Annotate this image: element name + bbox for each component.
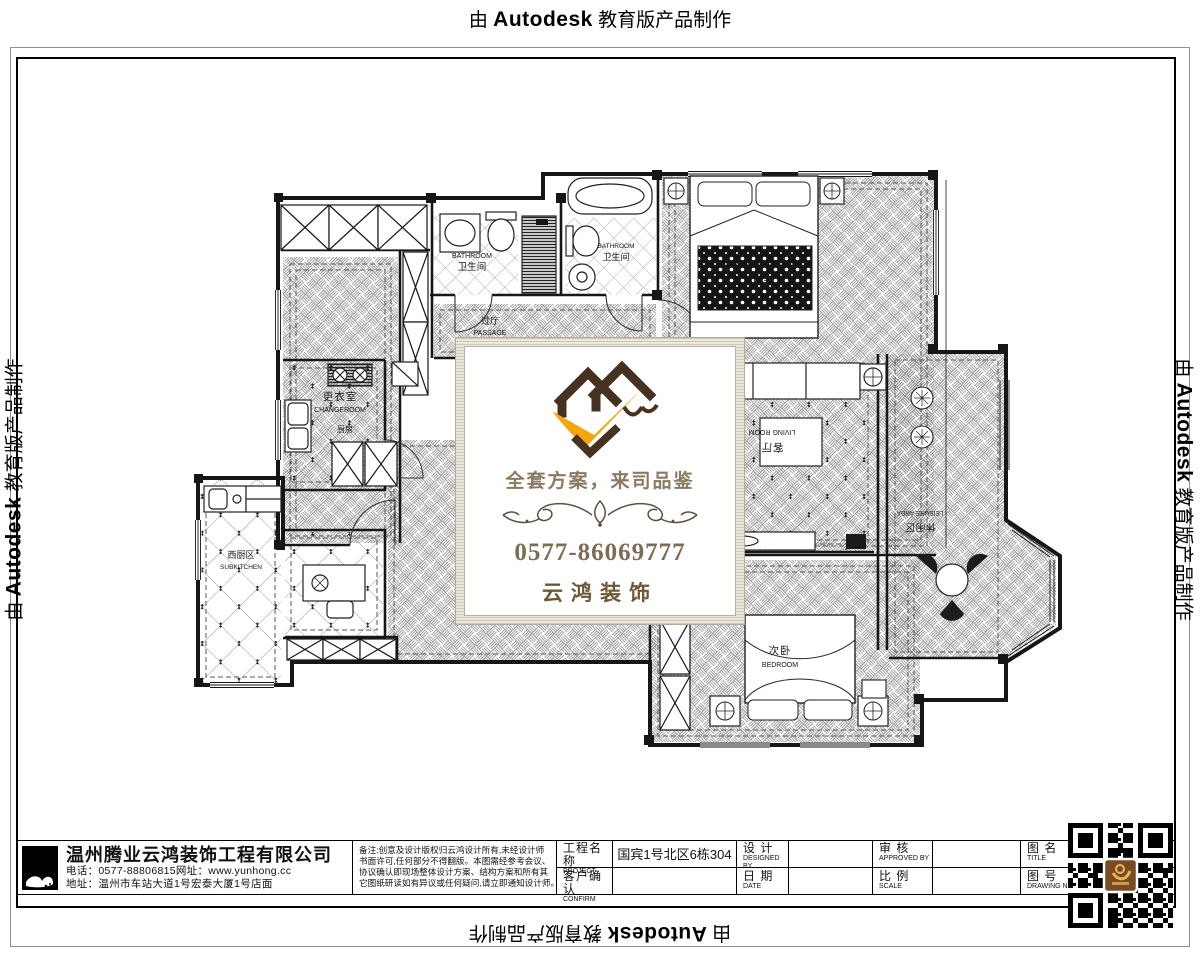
label-bath1-zh: 卫生间 <box>458 261 487 273</box>
field-confirm-label: 客户确认 CONFIRM <box>557 867 612 894</box>
label-living-zh: 客厅 <box>761 441 784 454</box>
company-name: 温州腾业云鸿装饰工程有限公司 <box>66 845 332 865</box>
field-scale-en: SCALE <box>879 883 932 891</box>
label-bedroom2-zh: 次卧 <box>769 644 792 657</box>
field-values-project-confirm: 国宾1号北区6栋304 <box>612 840 736 895</box>
field-values-design-date <box>788 840 872 895</box>
cad-sheet: { "autodesk": {"prefix": "由", "brand": "… <box>0 0 1200 960</box>
company-logo-icon <box>22 846 58 890</box>
field-values-check-scale <box>932 840 1020 895</box>
label-living-en: LIVING ROOM <box>749 428 796 435</box>
label-leisure-zh: 休闲区 <box>904 521 936 533</box>
label-bath2-zh: 卫生间 <box>602 251 629 262</box>
confirm-value <box>613 867 736 894</box>
label-passage-en: PASSAGE <box>474 330 507 337</box>
field-check-en: APPROVED BY <box>879 855 932 863</box>
project-name-value: 国宾1号北区6栋304 <box>613 840 736 867</box>
note-line-4: 它图纸研读如有异议或任何疑问,请立即通知设计师。 <box>359 878 552 889</box>
field-scale-label: 比 例 SCALE <box>873 867 932 894</box>
field-scale-zh: 比 例 <box>879 870 932 883</box>
titleblock-company: 温州腾业云鸿装饰工程有限公司 电话：0577-88806815网址：www.yu… <box>16 840 352 895</box>
design-value <box>789 840 872 867</box>
watermark-phone-number: 0577-86069777 <box>465 539 735 567</box>
label-changeroom-en: CHANGEROOM <box>314 407 366 414</box>
field-labels-design-date: 设 计 DESIGNED BY 日 期 DATE <box>736 840 788 895</box>
label-passage-zh: 过厅 <box>481 315 499 326</box>
field-date-en: DATE <box>743 883 788 891</box>
subkitchen-fixtures <box>204 486 281 512</box>
field-confirm-zh: 客户确认 <box>563 870 612 896</box>
field-project-zh: 工程名称 <box>563 842 612 868</box>
label-bedroom2-en: BEDROOM <box>762 662 798 669</box>
qr-code <box>1068 823 1173 928</box>
label-master-zh: 主卧 <box>750 271 774 284</box>
date-value <box>789 867 872 894</box>
field-labels-project-confirm: 工程名称 PROJECT 客户确认 CONFIRM <box>556 840 612 895</box>
field-design-label: 设 计 DESIGNED BY <box>737 840 788 867</box>
label-bath2-en: BATHROOM <box>597 243 634 250</box>
titleblock-notes: 备注:创意及设计版权归云鸿设计所有,未经设计师 书面许可,任何部分不得翻版。本图… <box>352 840 556 895</box>
check-value <box>933 840 1020 867</box>
field-check-zh: 审 核 <box>879 842 932 855</box>
field-design-zh: 设 计 <box>743 842 788 855</box>
field-labels-check-scale: 审 核 APPROVED BY 比 例 SCALE <box>872 840 932 895</box>
field-check-label: 审 核 APPROVED BY <box>873 840 932 867</box>
master-bed <box>664 176 844 338</box>
label-kitchen-zh: 厨房 <box>337 424 353 434</box>
label-changeroom-zh: 更衣室 <box>323 390 358 403</box>
note-line-1: 备注:创意及设计版权归云鸿设计所有,未经设计师 <box>359 845 552 856</box>
watermark-card: 全套方案，来司品鉴 0577-86069777 云鸿装饰 <box>455 337 745 625</box>
label-leisure-en: LEISURE AREA <box>896 509 944 516</box>
company-address: 地址：温州市车站大道1号宏泰大厦1号店面 <box>66 878 332 891</box>
company-contact: 电话：0577-88806815网址：www.yunhong.cc <box>66 865 332 878</box>
label-master-en: MASTER BEDROOM <box>726 258 798 267</box>
note-line-3: 协议确认即现场整体设计方案、结构方案和所有其 <box>359 867 552 878</box>
ornament-divider-icon <box>493 497 707 527</box>
label-bath1-en: BATHROOM <box>452 253 492 260</box>
field-confirm-en: CONFIRM <box>563 896 612 904</box>
watermark-slogan: 全套方案，来司品鉴 <box>465 466 735 493</box>
field-project-label: 工程名称 PROJECT <box>557 840 612 867</box>
note-line-2: 书面许可,任何部分不得翻版。本图需经参考会议、 <box>359 856 552 867</box>
scale-value <box>933 867 1020 894</box>
field-date-label: 日 期 DATE <box>737 867 788 894</box>
qr-center-logo <box>1104 859 1137 892</box>
watermark-brand-name: 云鸿装饰 <box>465 577 735 607</box>
label-subkitchen-zh: 西厨区 <box>227 550 254 560</box>
yunhong-logo-icon <box>538 355 662 459</box>
label-subkitchen-en: SUBKITCHEN <box>220 564 262 571</box>
field-date-zh: 日 期 <box>743 870 788 883</box>
